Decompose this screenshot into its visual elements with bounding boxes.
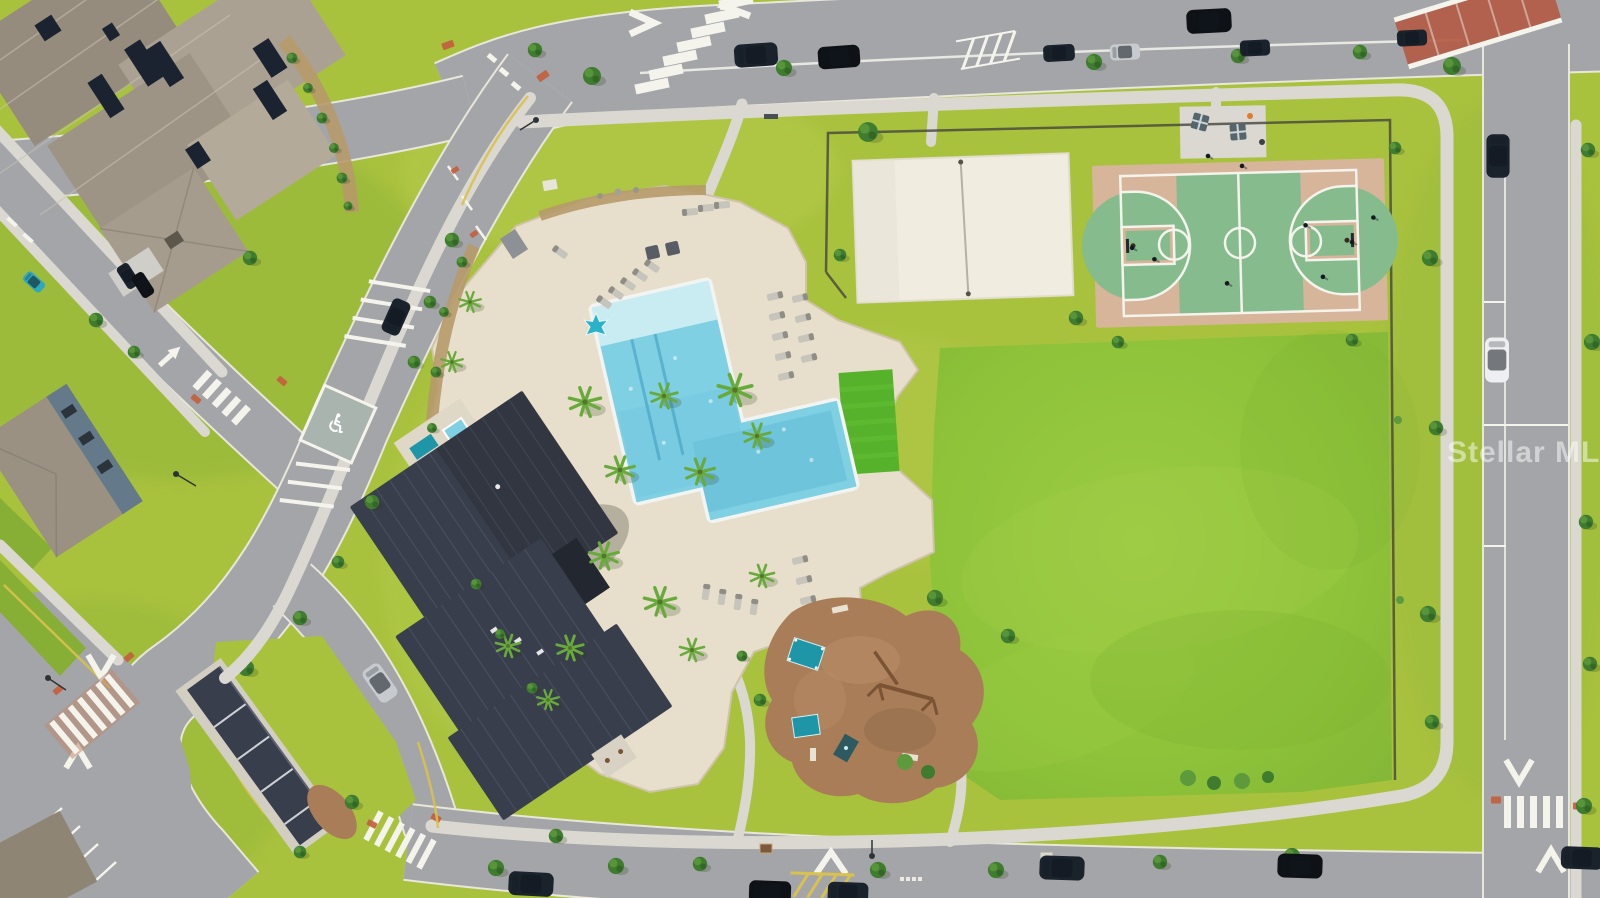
volleyball-court [853,153,1074,302]
parked-car [1397,29,1428,47]
parked-car [1277,853,1323,879]
aerial-photo-canvas: ♿ [0,0,1600,898]
playground [764,597,984,803]
volleyball-path [931,98,934,142]
basketball-court [1080,158,1400,328]
event-lawn [908,330,1420,800]
parked-car [749,880,792,898]
parked-car [1039,855,1085,881]
aerial-photo: ♿ [0,0,1600,898]
trash-can [1259,139,1265,145]
parked-car [1486,134,1509,178]
watermark: Stellar MLS [1447,436,1600,469]
bench [764,114,778,119]
cone [1247,113,1253,119]
moving-car [1186,8,1232,34]
parked-car [1240,39,1271,57]
utility-box [760,844,772,853]
parked-car [827,881,868,898]
bench [810,748,816,761]
parked-car [1561,846,1600,870]
parked-car-white [1485,338,1509,383]
shade-structure [792,714,821,737]
parked-car [1110,43,1141,61]
picnic-plaza [1180,105,1267,158]
parked-car [733,42,778,68]
parked-car [817,44,860,69]
parked-car [1043,44,1075,62]
parked-car [508,871,554,897]
